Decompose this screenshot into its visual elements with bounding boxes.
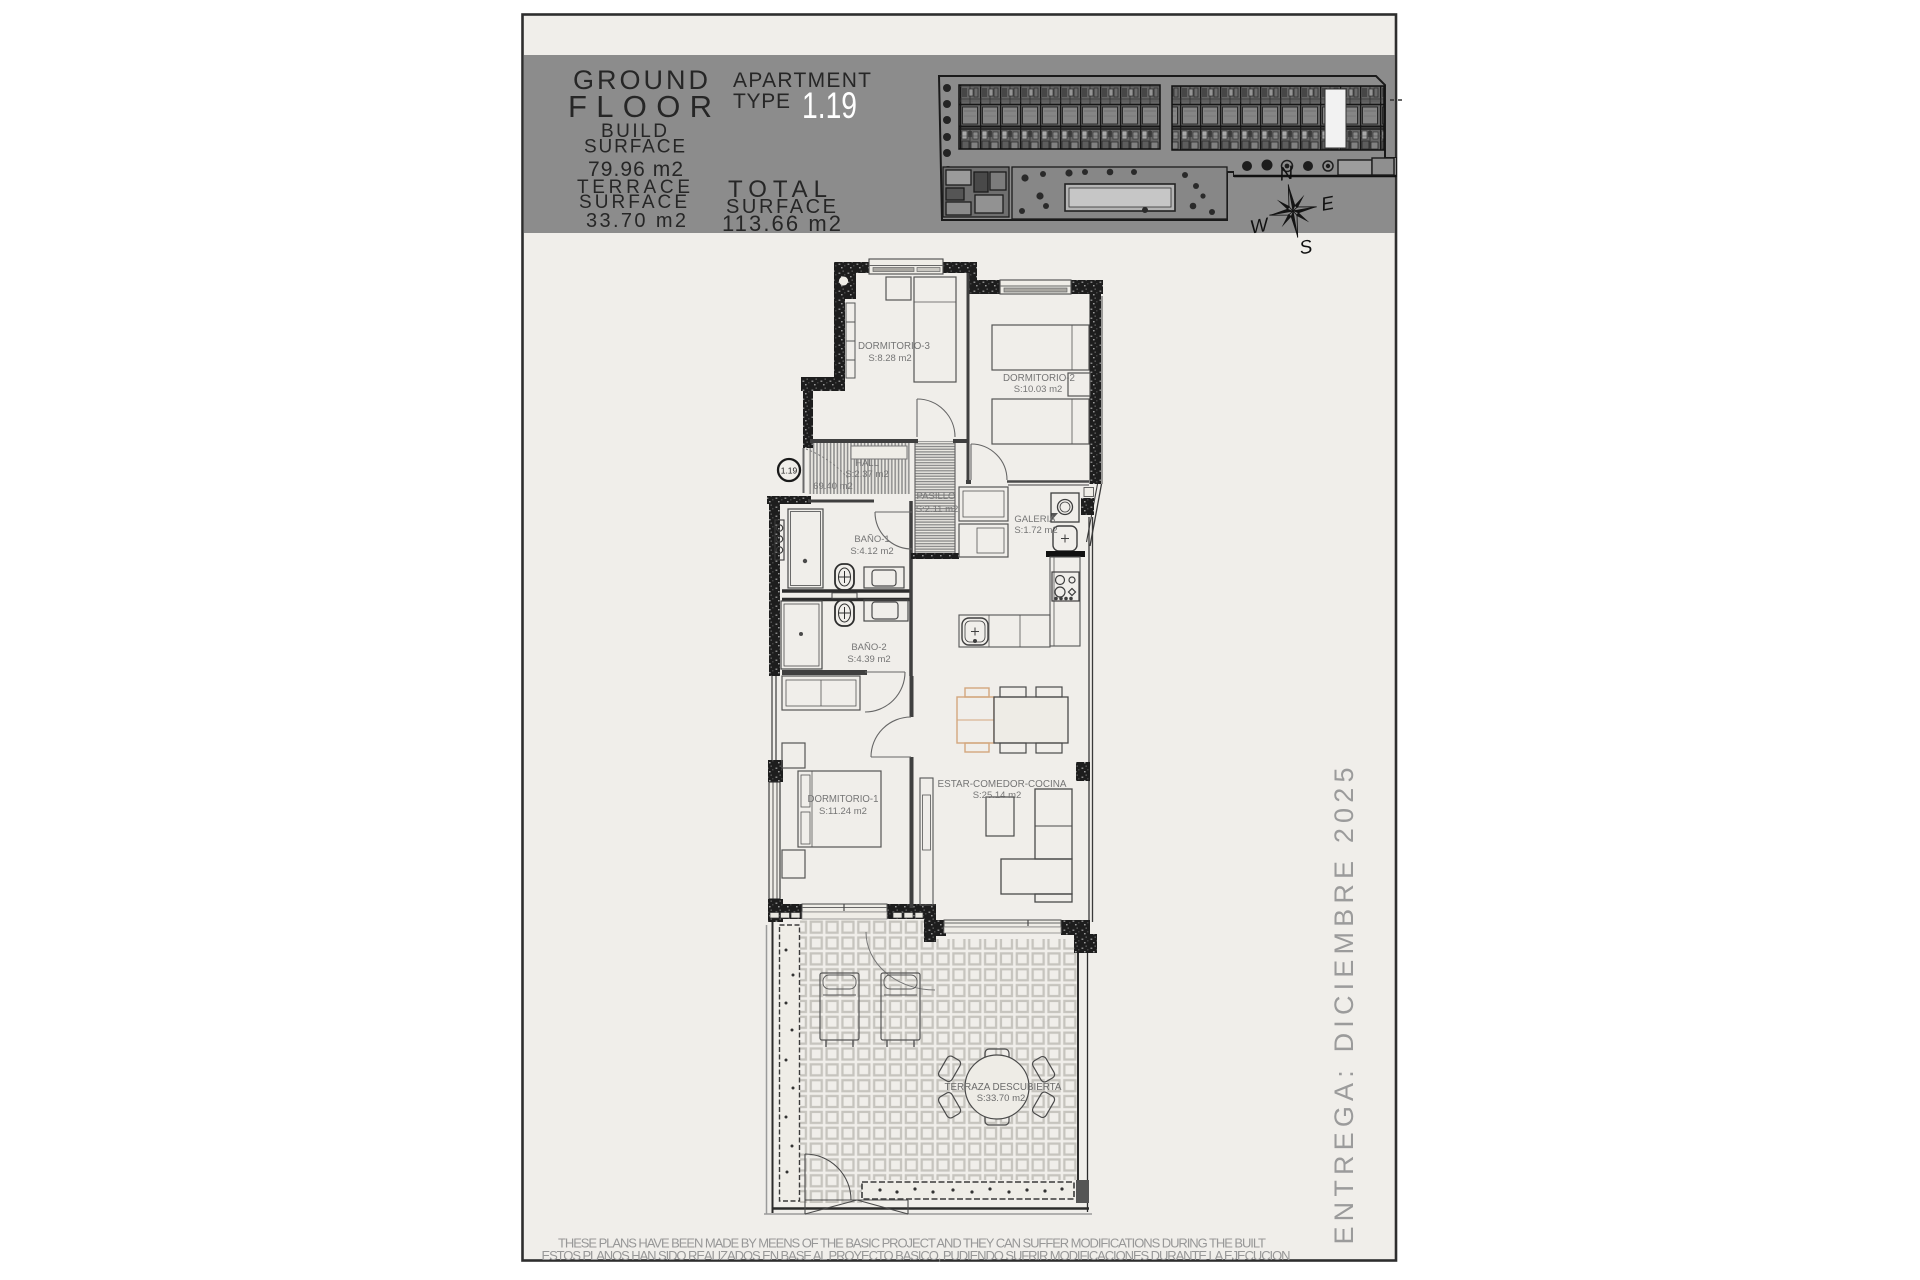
svg-text:BAÑO-1: BAÑO-1	[854, 534, 889, 545]
svg-text:33.70 m2: 33.70 m2	[586, 210, 686, 232]
svg-text:S:2.37 m2: S:2.37 m2	[845, 469, 888, 480]
svg-text:S:4.39 m2: S:4.39 m2	[847, 654, 890, 665]
svg-text:GALERIA: GALERIA	[1014, 514, 1056, 525]
svg-text:ENTREGA: DICIEMBRE 2025: ENTREGA: DICIEMBRE 2025	[1329, 768, 1359, 1245]
svg-text:S:25.14 m2: S:25.14 m2	[973, 790, 1022, 801]
svg-text:S:33.70 m2: S:33.70 m2	[977, 1093, 1026, 1104]
svg-text:BAÑO-2: BAÑO-2	[851, 642, 886, 653]
svg-text:S:2.11 m2: S:2.11 m2	[916, 504, 959, 515]
svg-text:S:11.24 m2: S:11.24 m2	[819, 806, 867, 817]
svg-text:HALL: HALL	[855, 458, 879, 469]
svg-text:DORMITORIO-1: DORMITORIO-1	[808, 794, 879, 805]
svg-text:DORMITORIO-2: DORMITORIO-2	[1003, 373, 1075, 384]
svg-text:ESTAR-COMEDOR-COCINA: ESTAR-COMEDOR-COCINA	[938, 779, 1067, 790]
svg-text:S:8.28 m2: S:8.28 m2	[868, 353, 911, 364]
svg-text:1.19: 1.19	[781, 466, 798, 476]
svg-text:1.19: 1.19	[802, 85, 857, 126]
svg-text:69.40 m2: 69.40 m2	[813, 481, 853, 492]
svg-text:113.66 m2: 113.66 m2	[722, 211, 841, 236]
svg-text:S:10.03 m2: S:10.03 m2	[1014, 384, 1063, 395]
svg-text:ESTOS PLANOS HAN SIDO REALIZAD: ESTOS PLANOS HAN SIDO REALIZADOS EN BASE…	[542, 1248, 1291, 1263]
svg-text:TYPE: TYPE	[733, 90, 790, 113]
svg-text:S:1.72 m2: S:1.72 m2	[1014, 525, 1057, 536]
svg-text:PASILLO: PASILLO	[917, 491, 956, 502]
svg-text:S:4.12 m2: S:4.12 m2	[850, 546, 893, 557]
svg-text:TERRAZA DESCUBIERTA: TERRAZA DESCUBIERTA	[945, 1082, 1062, 1093]
svg-text:DORMITORIO-3: DORMITORIO-3	[858, 341, 930, 352]
svg-text:SURFACE: SURFACE	[584, 137, 685, 158]
